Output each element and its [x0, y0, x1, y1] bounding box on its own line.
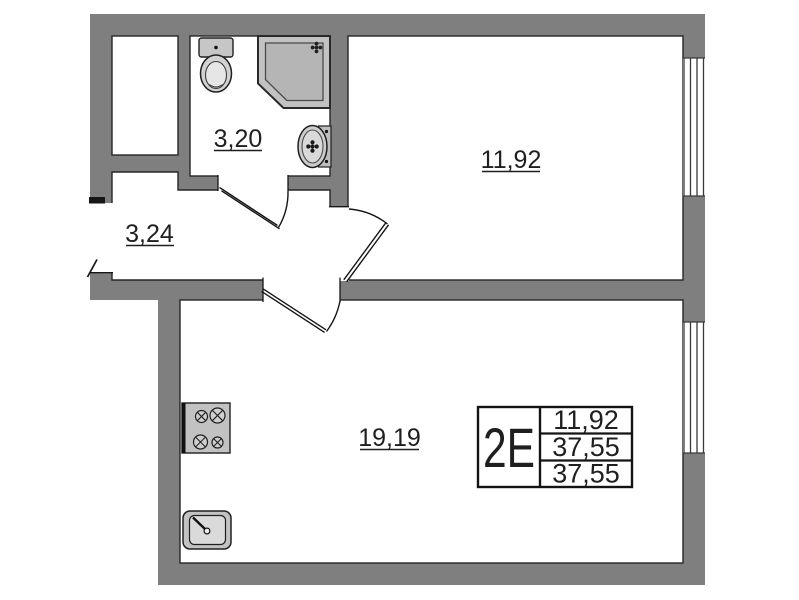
window-icon-bedroom: [683, 58, 705, 196]
stamp-unit-type: 2E: [483, 416, 535, 479]
room-shaft: [112, 36, 178, 155]
kitchen-sink-icon: [183, 511, 231, 549]
bathroom-area-label: 3,20: [214, 125, 263, 153]
stove-icon: [182, 403, 230, 453]
stamp-row-1: 11,92: [553, 405, 619, 435]
floor-plan: 3,20 3,24 11,92 19,19 2E 11,92 37,55 37,…: [0, 0, 799, 600]
hallway-area-label: 3,24: [125, 220, 174, 248]
unit-stamp: 2E 11,92 37,55 37,55: [478, 405, 632, 489]
living-area-label: 19,19: [358, 424, 421, 452]
floor-plan-canvas: 3,20 3,24 11,92 19,19 2E 11,92 37,55 37,…: [0, 0, 799, 600]
window-icon-living: [683, 322, 705, 453]
bedroom-area-label: 11,92: [481, 146, 542, 174]
stamp-row-2: 37,55: [552, 432, 620, 462]
toilet-icon: [199, 38, 233, 92]
stamp-row-3: 37,55: [552, 459, 620, 489]
washbasin-icon: [298, 126, 331, 168]
